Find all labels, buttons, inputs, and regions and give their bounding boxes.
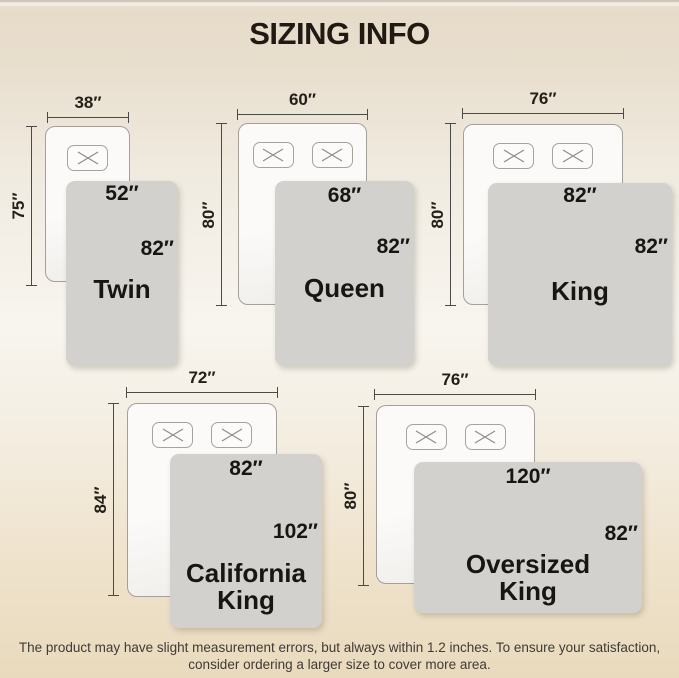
bed-length-dimension-line: 84″ — [113, 404, 114, 595]
blanket-length-label: 82″ — [605, 523, 638, 545]
blanket-length-label: 102″ — [273, 521, 318, 543]
bed-width-dimension-line: 76″ — [463, 113, 623, 114]
pillow-x-icon — [473, 430, 497, 444]
pillow-x-icon — [76, 151, 100, 165]
pillow-x-icon — [561, 149, 585, 163]
bed-width-dimension-line: 60″ — [238, 114, 367, 115]
pillow — [406, 424, 447, 450]
blanket: 120″ 82″ Oversized King — [414, 462, 642, 613]
bed-width-label: 60″ — [289, 90, 316, 110]
pillow-x-icon — [320, 148, 344, 162]
bed-length-dimension-line: 75″ — [31, 127, 32, 285]
bed-length-label: 75″ — [9, 192, 29, 219]
pillow-x-icon — [161, 428, 185, 442]
blanket-width-label: 68″ — [275, 185, 414, 207]
blanket-length-label: 82″ — [635, 236, 668, 258]
pillow — [465, 424, 506, 450]
blanket-width-label: 82″ — [170, 458, 322, 480]
bed-length-label: 80″ — [199, 201, 219, 228]
size-name: Oversized King — [448, 551, 608, 606]
sizing-info-page: SIZING INFO 38″ 75″ 52″ 82″ Twin 60″ 80″ — [0, 0, 679, 678]
page-title: SIZING INFO — [0, 16, 679, 52]
pillow — [211, 422, 252, 448]
size-name: King — [488, 278, 672, 305]
blanket-width-label: 120″ — [414, 466, 642, 488]
blanket-width-label: 82″ — [488, 185, 672, 207]
blanket: 68″ 82″ Queen — [275, 181, 414, 366]
disclaimer-note: The product may have slight measurement … — [0, 639, 679, 674]
bed-width-dimension-line: 76″ — [375, 394, 535, 395]
pillow — [493, 143, 534, 169]
pillow-x-icon — [414, 430, 438, 444]
pillow — [253, 142, 294, 168]
top-edge-strip — [0, 0, 679, 7]
disclaimer-text: The product may have slight measurement … — [16, 639, 664, 674]
size-name: Twin — [66, 276, 178, 303]
pillow-x-icon — [261, 148, 285, 162]
bed-length-label: 80″ — [428, 201, 448, 228]
pillow — [312, 142, 353, 168]
bed-length-dimension-line: 80″ — [221, 124, 222, 305]
blanket-length-label: 82″ — [141, 238, 174, 260]
size-name: Queen — [275, 275, 414, 302]
blanket: 52″ 82″ Twin — [66, 181, 178, 366]
blanket: 82″ 82″ King — [488, 183, 672, 366]
blanket-width-label: 52″ — [66, 183, 178, 205]
pillow-x-icon — [502, 149, 526, 163]
pillow-x-icon — [220, 428, 244, 442]
bed-length-dimension-line: 80″ — [450, 124, 451, 305]
pillow — [67, 145, 108, 171]
blanket: 82″ 102″ California King — [170, 454, 322, 628]
bed-width-label: 76″ — [441, 370, 468, 390]
bed-length-label: 84″ — [91, 486, 111, 513]
blanket-length-label: 82″ — [377, 236, 410, 258]
bed-width-label: 76″ — [529, 89, 556, 109]
pillow — [552, 143, 593, 169]
bed-length-label: 80″ — [341, 482, 361, 509]
pillow — [152, 422, 193, 448]
bed-width-dimension-line: 72″ — [127, 392, 277, 393]
bed-width-label: 38″ — [74, 93, 101, 113]
bed-width-label: 72″ — [188, 368, 215, 388]
bed-length-dimension-line: 80″ — [363, 407, 364, 585]
size-name: California King — [170, 560, 322, 615]
bed-width-dimension-line: 38″ — [48, 117, 128, 118]
